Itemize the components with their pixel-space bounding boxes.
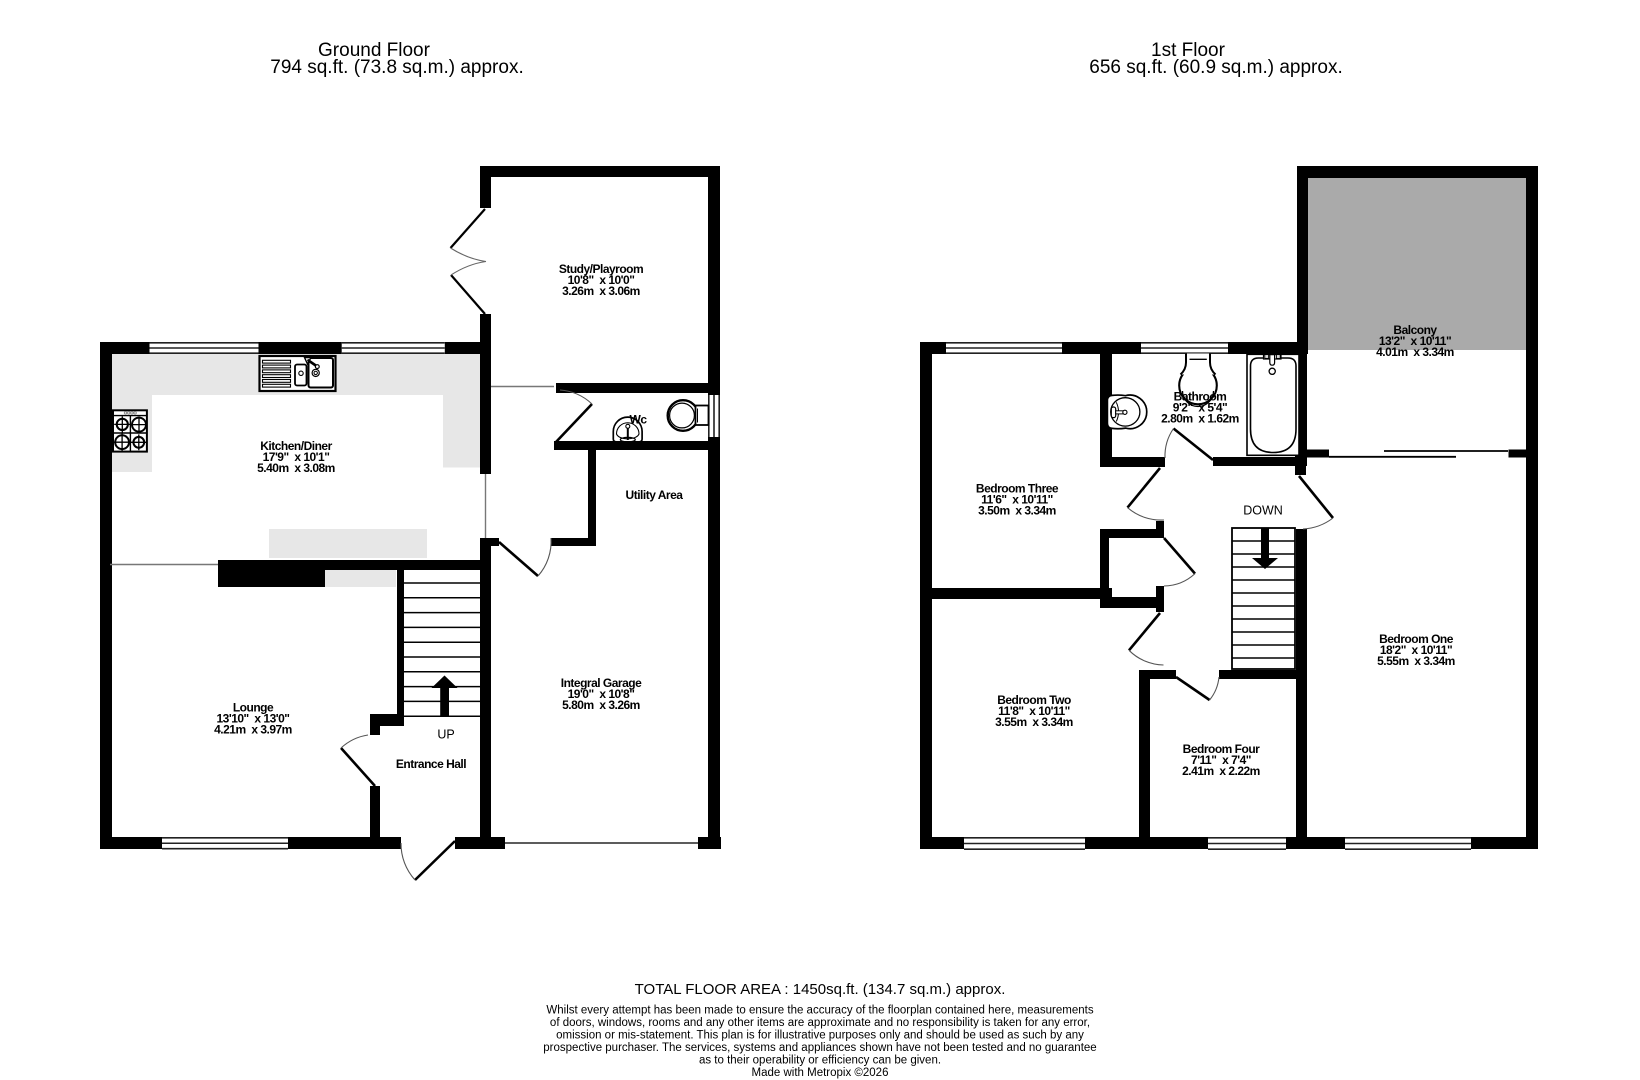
svg-text:2.80m x 1.62m: 2.80m x 1.62m [1161,412,1239,426]
svg-text:TOTAL FLOOR AREA : 1450sq.ft.: TOTAL FLOOR AREA : 1450sq.ft. (134.7 sq.… [635,981,1006,998]
svg-text:794 sq.ft. (73.8 sq.m.) approx: 794 sq.ft. (73.8 sq.m.) approx. [270,57,523,78]
svg-text:UP: UP [437,728,454,742]
svg-text:3.55m x 3.34m: 3.55m x 3.34m [995,715,1073,729]
svg-text:5.55m x 3.34m: 5.55m x 3.34m [1377,654,1455,668]
svg-text:Entrance Hall: Entrance Hall [396,757,466,771]
svg-text:omission or mis-statement. Thi: omission or mis-statement. This plan is … [556,1030,1084,1042]
svg-text:4.01m x 3.34m: 4.01m x 3.34m [1376,345,1454,359]
svg-text:5.80m x 3.26m: 5.80m x 3.26m [562,698,640,712]
svg-text:Whilst every attempt has been: Whilst every attempt has been made to en… [546,1005,1093,1017]
svg-text:Utility Area: Utility Area [626,488,684,502]
svg-text:3.26m x 3.06m: 3.26m x 3.06m [562,284,640,298]
svg-text:656 sq.ft. (60.9 sq.m.) approx: 656 sq.ft. (60.9 sq.m.) approx. [1089,57,1342,78]
svg-text:of doors, windows, rooms and a: of doors, windows, rooms and any other i… [550,1017,1090,1029]
svg-text:4.21m x 3.97m: 4.21m x 3.97m [214,723,292,737]
svg-text:DOWN: DOWN [1243,504,1283,518]
svg-text:prospective purchaser. The ser: prospective purchaser. The services, sys… [543,1042,1096,1054]
svg-text:5.40m x 3.08m: 5.40m x 3.08m [257,461,335,475]
svg-text:2.41m x 2.22m: 2.41m x 2.22m [1182,764,1260,778]
svg-text:3.50m x 3.34m: 3.50m x 3.34m [978,504,1056,518]
svg-text:Made with Metropix ©2026: Made with Metropix ©2026 [752,1067,889,1079]
svg-text:Wc: Wc [630,413,648,427]
svg-text:as to their operability or eff: as to their operability or efficiency ca… [699,1055,941,1067]
